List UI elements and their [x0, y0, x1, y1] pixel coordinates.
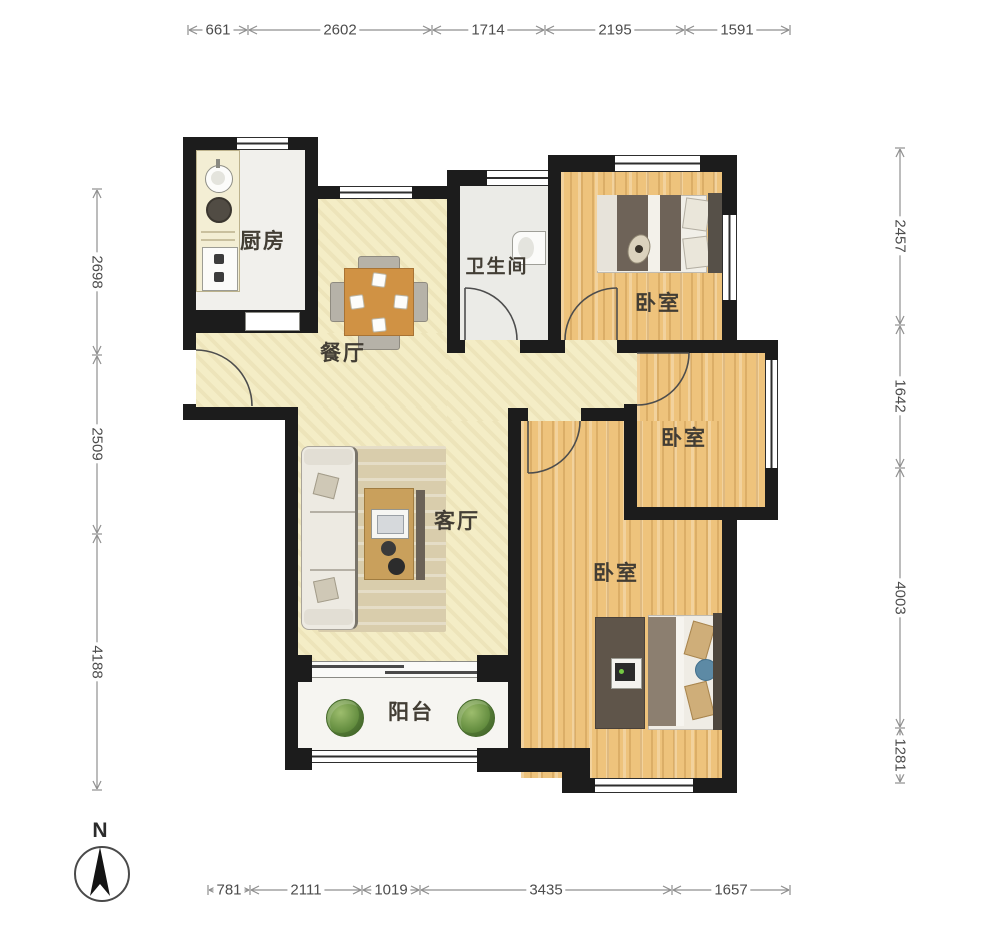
- sofa-armrest: [304, 609, 353, 625]
- wall-balcony-col-a: [285, 655, 312, 682]
- bed-sheet: [597, 195, 618, 271]
- wall-balcony-corner-a: [285, 748, 312, 770]
- pillow: [682, 197, 711, 231]
- dim-label-top-3: 2195: [595, 22, 634, 39]
- pillow: [682, 236, 711, 270]
- tv-screen: [377, 515, 404, 534]
- window-bathroom: [487, 170, 548, 186]
- teapot-icon: [381, 541, 396, 556]
- compass-icon: [74, 846, 130, 902]
- window-bedroom-top: [615, 155, 700, 172]
- dim-label-right-1: 1642: [892, 376, 909, 415]
- power-light: [619, 669, 624, 674]
- plate: [349, 294, 365, 310]
- wall-entry-step: [183, 407, 292, 420]
- wall-balcony-col-b: [477, 655, 521, 682]
- wall-bedroom-bot-right: [722, 507, 737, 793]
- tv-screen: [615, 663, 635, 681]
- tv-icon: [371, 509, 409, 539]
- window-kitchen: [237, 137, 288, 150]
- bed-blanket: [660, 195, 681, 271]
- faucet-icon: [216, 159, 220, 168]
- bed: [597, 193, 722, 273]
- plant-icon: [457, 699, 495, 737]
- north-label: N: [92, 819, 107, 843]
- plate: [393, 294, 408, 309]
- wall-kitchen-right: [305, 137, 318, 333]
- shelf-line: [201, 231, 235, 233]
- wall-mid-c: [617, 340, 778, 353]
- cushion-line: [310, 569, 355, 571]
- window-dining: [340, 186, 412, 199]
- kitchen-door-leaf: [245, 312, 300, 331]
- balcony-slider-panel: [385, 671, 477, 674]
- dim-label-right-0: 2457: [892, 216, 909, 255]
- dim-label-bottom-0: 781: [213, 882, 244, 899]
- wall-right-connector: [722, 507, 778, 520]
- plant-icon: [326, 699, 364, 737]
- stove-icon: [202, 247, 238, 291]
- bed-blanket-fold: [676, 617, 684, 726]
- dim-label-right-2: 4003: [892, 578, 909, 617]
- headboard: [708, 193, 722, 273]
- sink-basin: [211, 171, 225, 185]
- tv-board: [416, 490, 425, 580]
- wall-bedroom-mid-left: [624, 404, 637, 520]
- balcony-railing: [312, 750, 477, 763]
- room-label-bedroom-middle: 卧室: [661, 422, 707, 452]
- guitar-hole: [634, 244, 644, 254]
- dim-label-left-2: 4188: [89, 642, 106, 681]
- window-bedroom-top-right: [722, 215, 737, 300]
- kitchen-counter: [196, 150, 240, 292]
- dim-label-top-2: 1714: [468, 22, 507, 39]
- throw-pillow: [313, 473, 340, 500]
- dim-label-left-1: 2509: [89, 424, 106, 463]
- teapot-icon: [388, 558, 405, 575]
- dim-label-bottom-2: 1019: [371, 882, 410, 899]
- room-label-dining: 餐厅: [320, 337, 366, 367]
- dresser: [595, 617, 645, 729]
- balcony-slider-track: [312, 661, 477, 678]
- bed: [595, 613, 722, 730]
- wall-bedroom-top-left: [548, 155, 561, 353]
- dim-label-bottom-1: 2111: [287, 882, 324, 899]
- window-bedroom-middle: [765, 360, 778, 468]
- room-label-bedroom-bottom: 卧室: [593, 557, 639, 587]
- plate: [371, 317, 386, 332]
- room-label-living: 客厅: [434, 505, 480, 535]
- sofa-armrest: [304, 449, 353, 465]
- dim-label-left-0: 2698: [89, 252, 106, 291]
- pot-icon: [206, 197, 232, 223]
- plate: [371, 272, 387, 288]
- dim-label-top-4: 1591: [717, 22, 756, 39]
- floor-plan-canvas: 厨房 餐厅 卫生间 卧室 卧室 卧室 客厅 阳台 661 2602 1714 2…: [0, 0, 1000, 928]
- shelf-line: [201, 239, 235, 241]
- dim-label-bottom-4: 1657: [711, 882, 750, 899]
- coffee-table: [364, 488, 414, 580]
- wall-hall-bottom-b: [581, 408, 637, 421]
- wall-mid-b: [520, 340, 565, 353]
- room-label-bathroom: 卫生间: [465, 252, 528, 279]
- cushion-line: [310, 511, 355, 513]
- bed-blanket: [648, 617, 676, 726]
- wall-living-right: [508, 408, 521, 750]
- dim-label-right-3: 1281: [892, 735, 909, 774]
- wall-left-lower: [285, 407, 298, 770]
- dim-label-top-1: 2602: [320, 22, 359, 39]
- wall-balcony-corner-b: [477, 748, 575, 772]
- room-label-balcony: 阳台: [388, 696, 434, 726]
- room-label-kitchen: 厨房: [240, 225, 286, 255]
- wall-mid-a: [447, 340, 465, 353]
- dining-set: [330, 256, 426, 348]
- headboard: [713, 613, 722, 730]
- balcony-slider-panel: [312, 665, 404, 668]
- burner: [214, 254, 224, 264]
- throw-pillow: [313, 577, 339, 603]
- room-label-bedroom-top: 卧室: [635, 287, 681, 317]
- dim-label-top-0: 661: [202, 22, 233, 39]
- bed-blanket-fold: [648, 195, 660, 271]
- burner: [214, 272, 224, 282]
- wall-bath-left: [447, 170, 460, 353]
- window-bedroom-bottom: [595, 778, 693, 793]
- dim-label-bottom-3: 3435: [526, 882, 565, 899]
- sofa: [301, 446, 358, 630]
